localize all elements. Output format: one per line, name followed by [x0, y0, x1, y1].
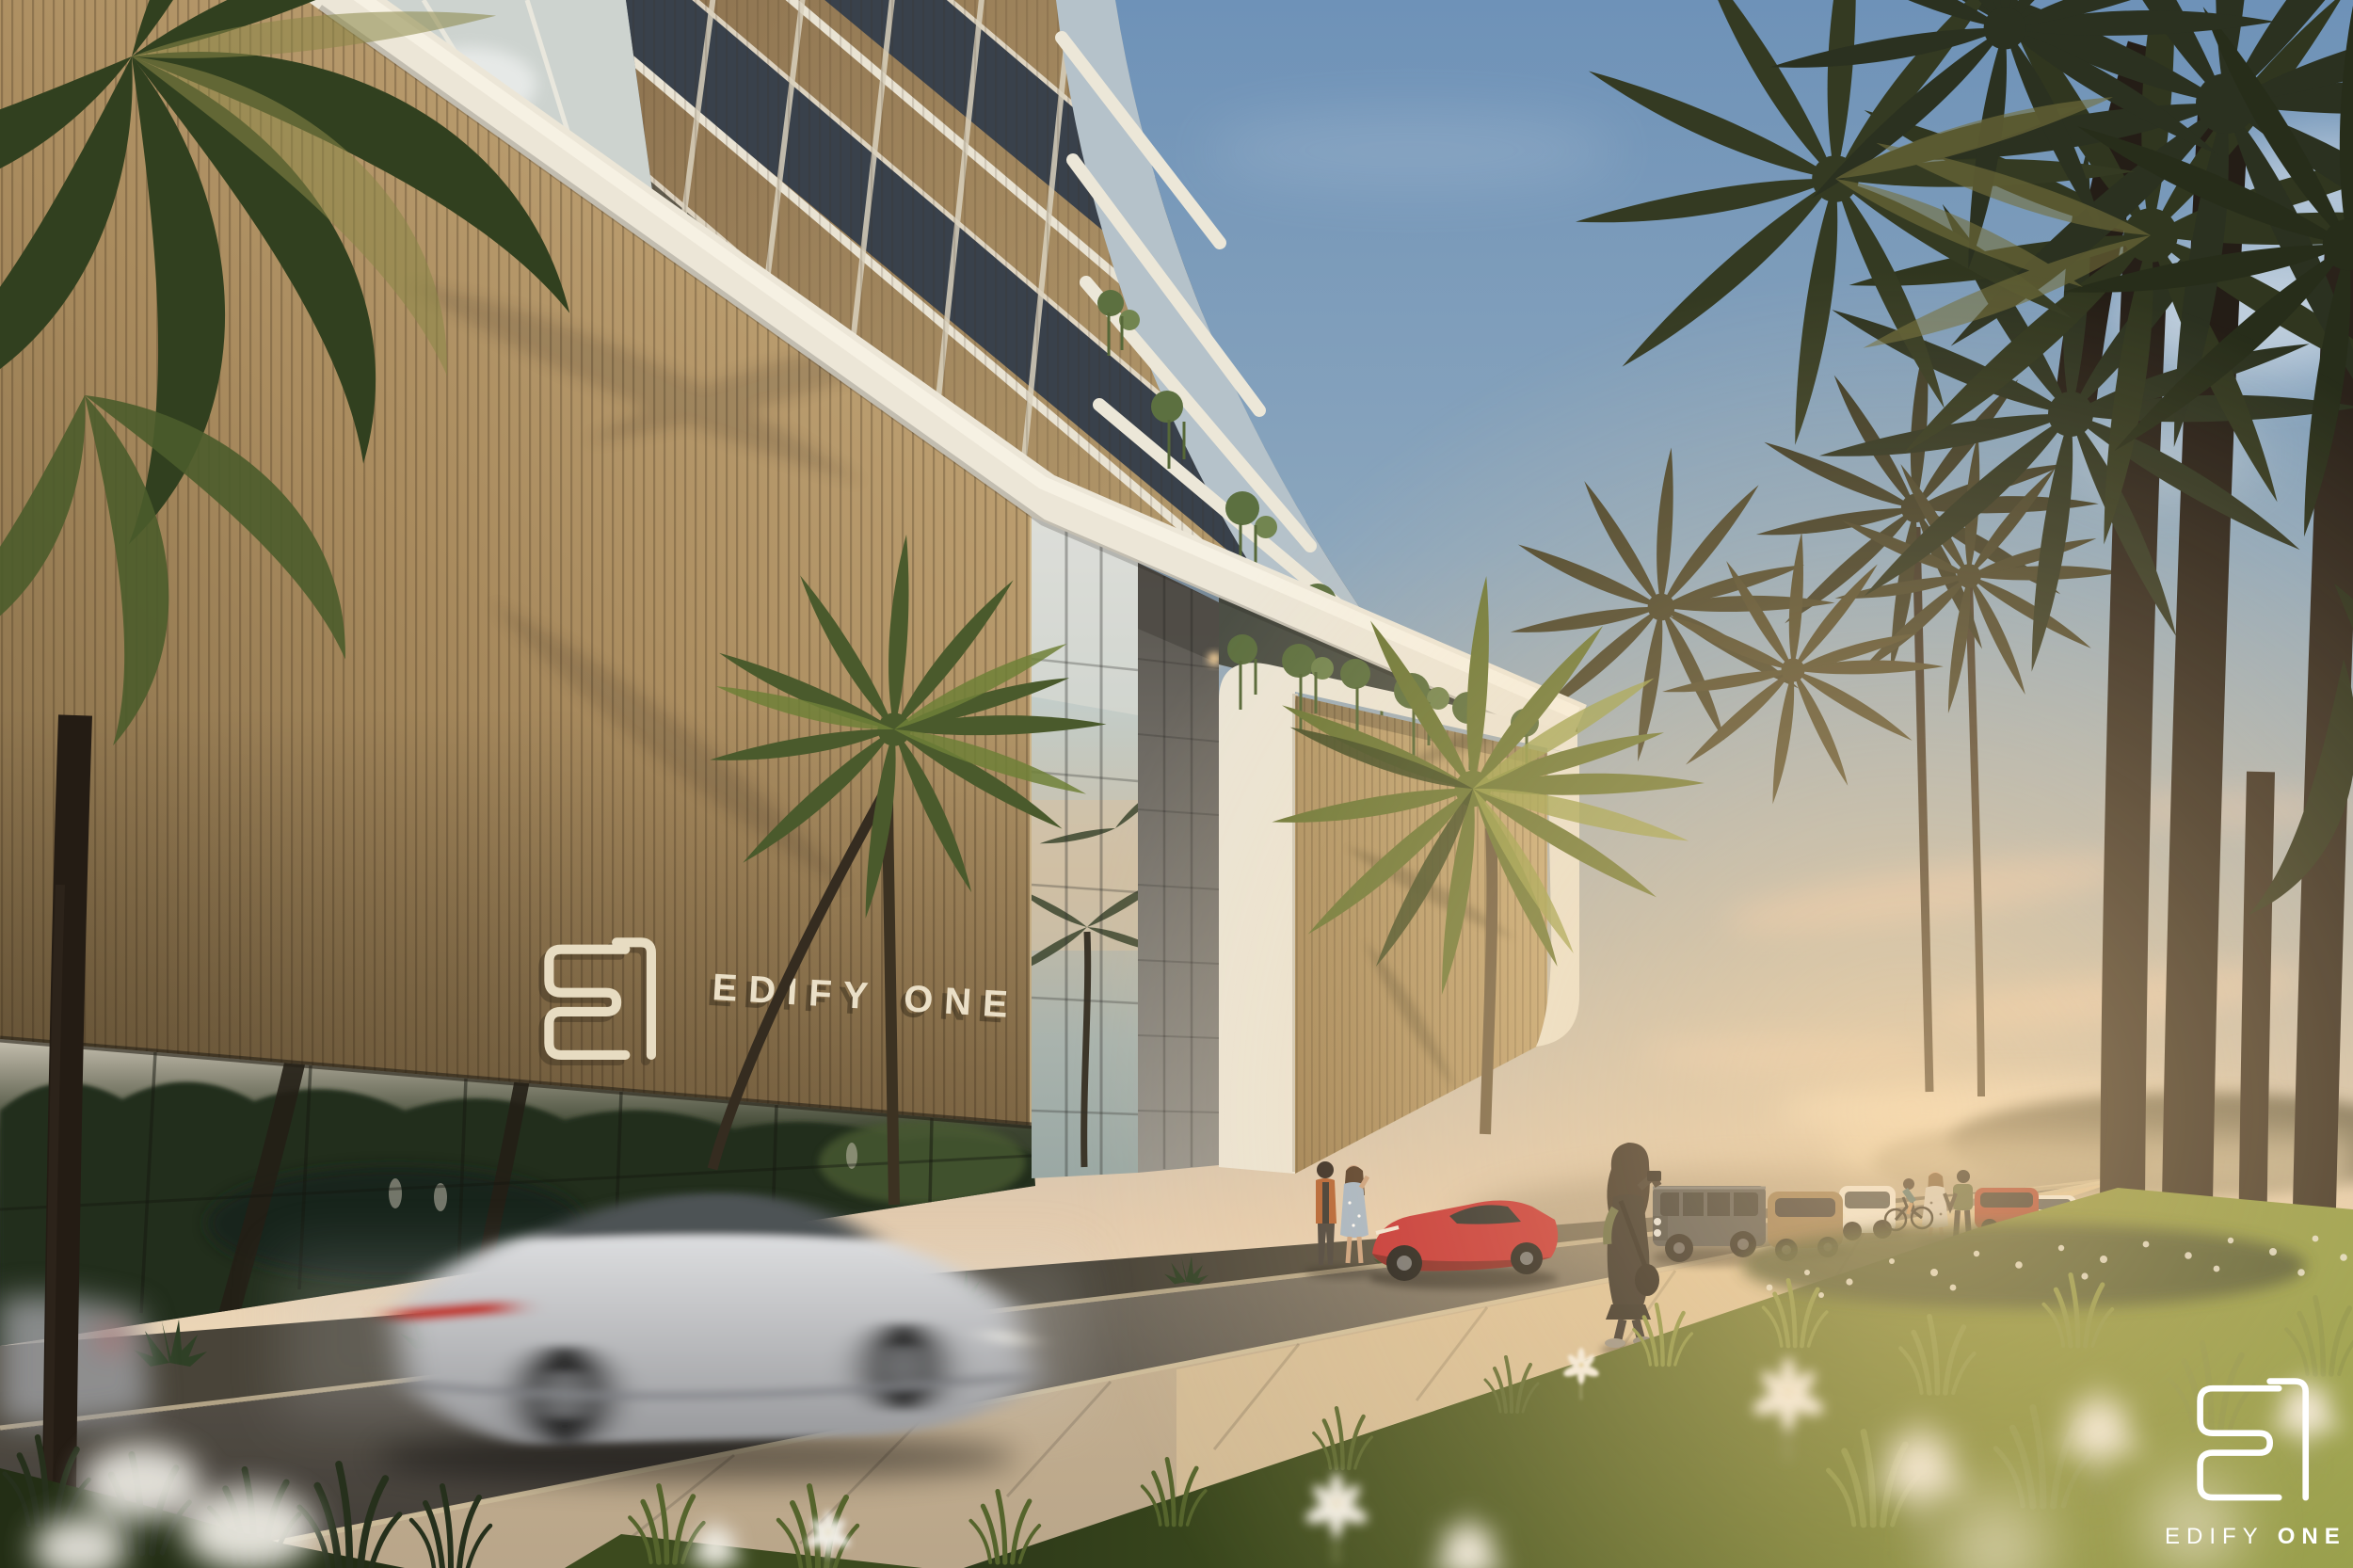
scene: EDIFYONE EDIFYONE — [0, 0, 2353, 1568]
architectural-render: EDIFYONE EDIFYONE — [0, 0, 2353, 1568]
watermark-text: EDIFYONE — [2165, 1524, 2346, 1549]
